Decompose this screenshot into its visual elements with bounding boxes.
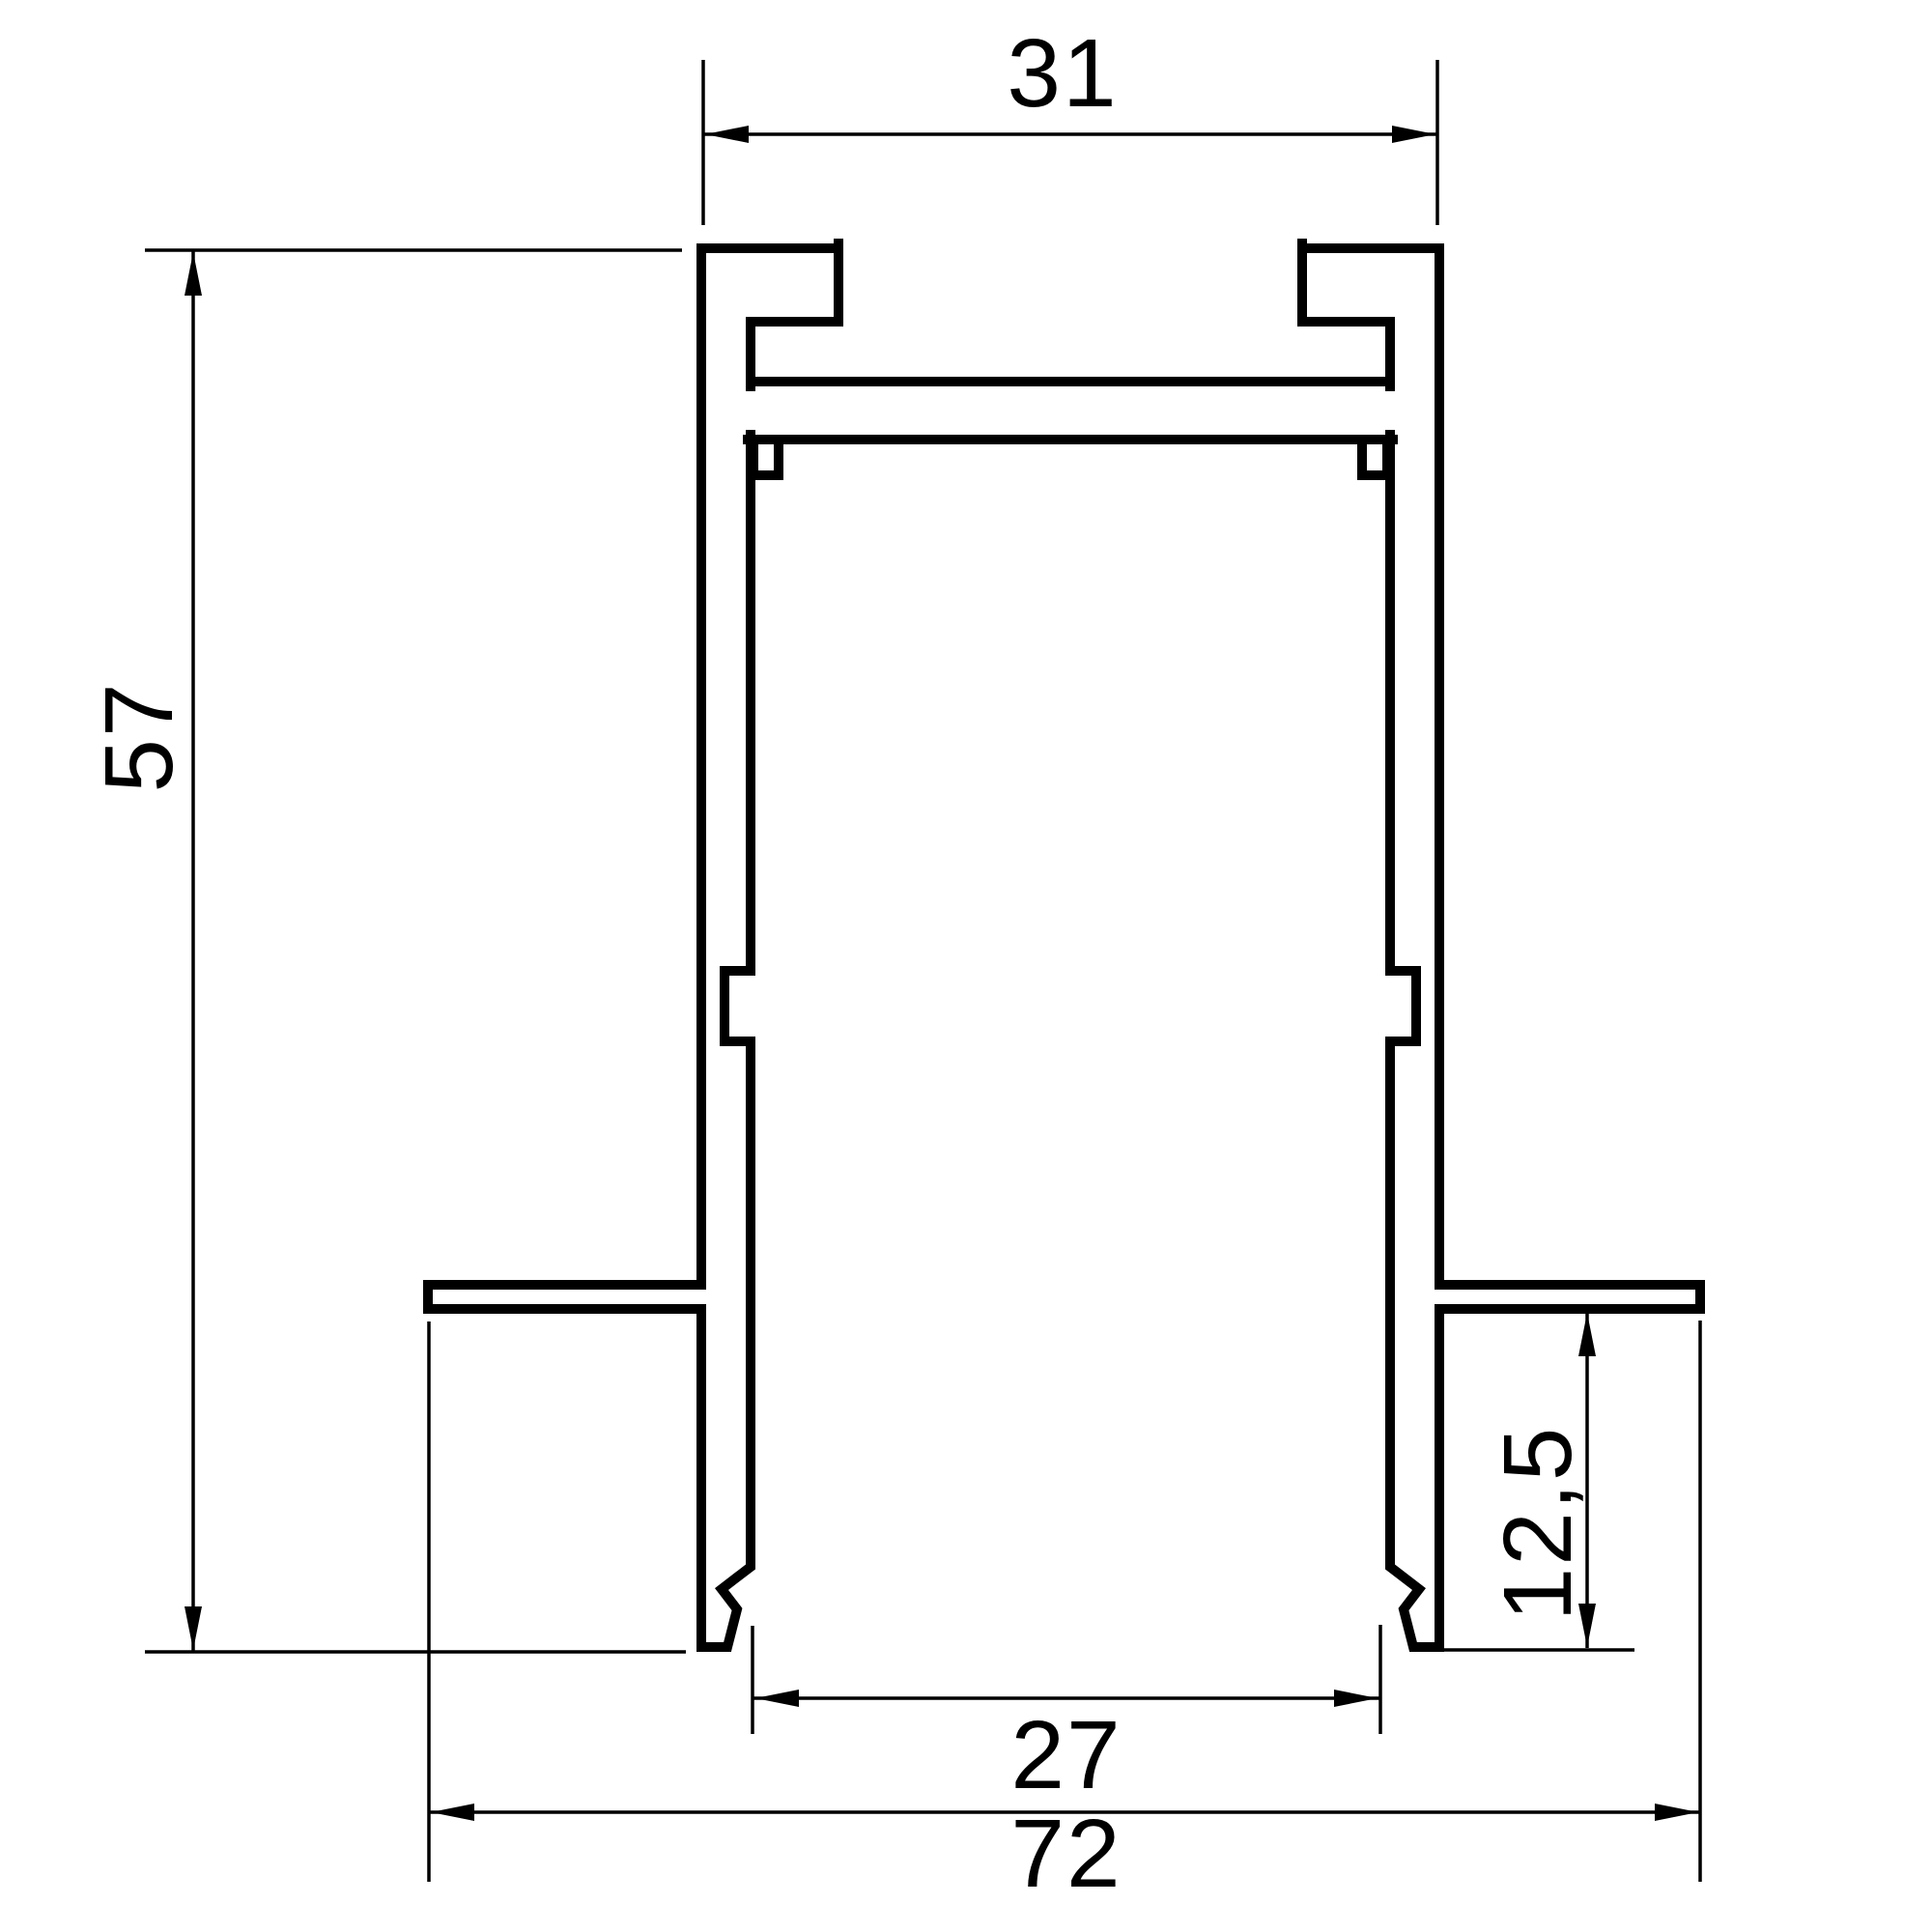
- dim-31-arrow-right: [1392, 126, 1435, 143]
- profile-right-hook: [1302, 243, 1390, 386]
- dimension-top-width: 31: [703, 19, 1437, 225]
- dimension-overall-height: 57: [85, 250, 686, 1652]
- profile-drawing-canvas: 31 57 27 72: [0, 0, 1932, 1932]
- dim-27-label: 27: [1010, 1701, 1122, 1809]
- dim-72-label: 72: [1010, 1800, 1122, 1908]
- dim-27-arrow-left: [755, 1690, 799, 1707]
- dim-72-arrow-left: [431, 1804, 474, 1821]
- dim-72-arrow-right: [1655, 1804, 1698, 1821]
- dim-125-arrow-top: [1578, 1313, 1596, 1356]
- profile-left-tooth: [753, 441, 779, 475]
- dim-125-label: 12,5: [1484, 1426, 1592, 1622]
- dim-57-arrow-top: [185, 252, 202, 296]
- profile-left-hook: [751, 243, 838, 386]
- dim-31-arrow-left: [705, 126, 749, 143]
- dim-57-arrow-bottom: [185, 1606, 202, 1650]
- profile-right-tooth: [1362, 441, 1387, 475]
- dim-31-label: 31: [1007, 19, 1118, 128]
- dim-27-arrow-right: [1334, 1690, 1378, 1707]
- dim-57-label: 57: [85, 681, 193, 792]
- dimension-recess-depth: 12,5: [1430, 1312, 1634, 1650]
- dimension-inner-width: 27: [753, 1625, 1380, 1809]
- technical-drawing-page: 31 57 27 72: [0, 0, 1932, 1932]
